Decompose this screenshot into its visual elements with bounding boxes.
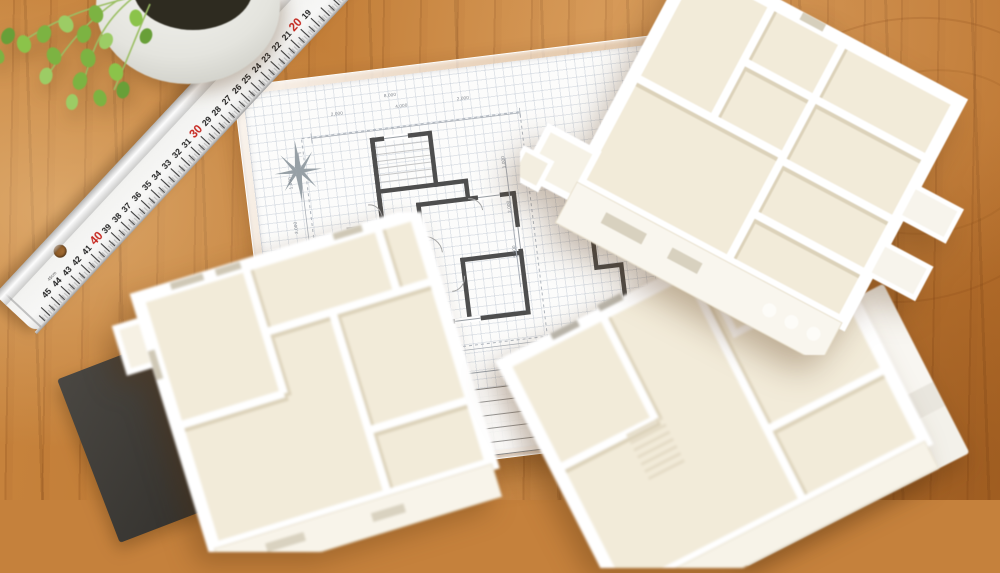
stairs-lines	[375, 141, 433, 182]
plant	[0, 0, 288, 146]
dimension-label: 8,000	[384, 92, 397, 98]
compass-rose-icon	[267, 137, 330, 205]
model-top-right	[520, 0, 1000, 360]
dimension-label: 2,000	[330, 110, 343, 116]
dimension-label: 4,000	[395, 103, 408, 109]
photo-architectural-scene: { "palette": { "wood": "#c5813c", "wood_…	[0, 0, 1000, 500]
dimension-label: 2,000	[457, 95, 470, 101]
